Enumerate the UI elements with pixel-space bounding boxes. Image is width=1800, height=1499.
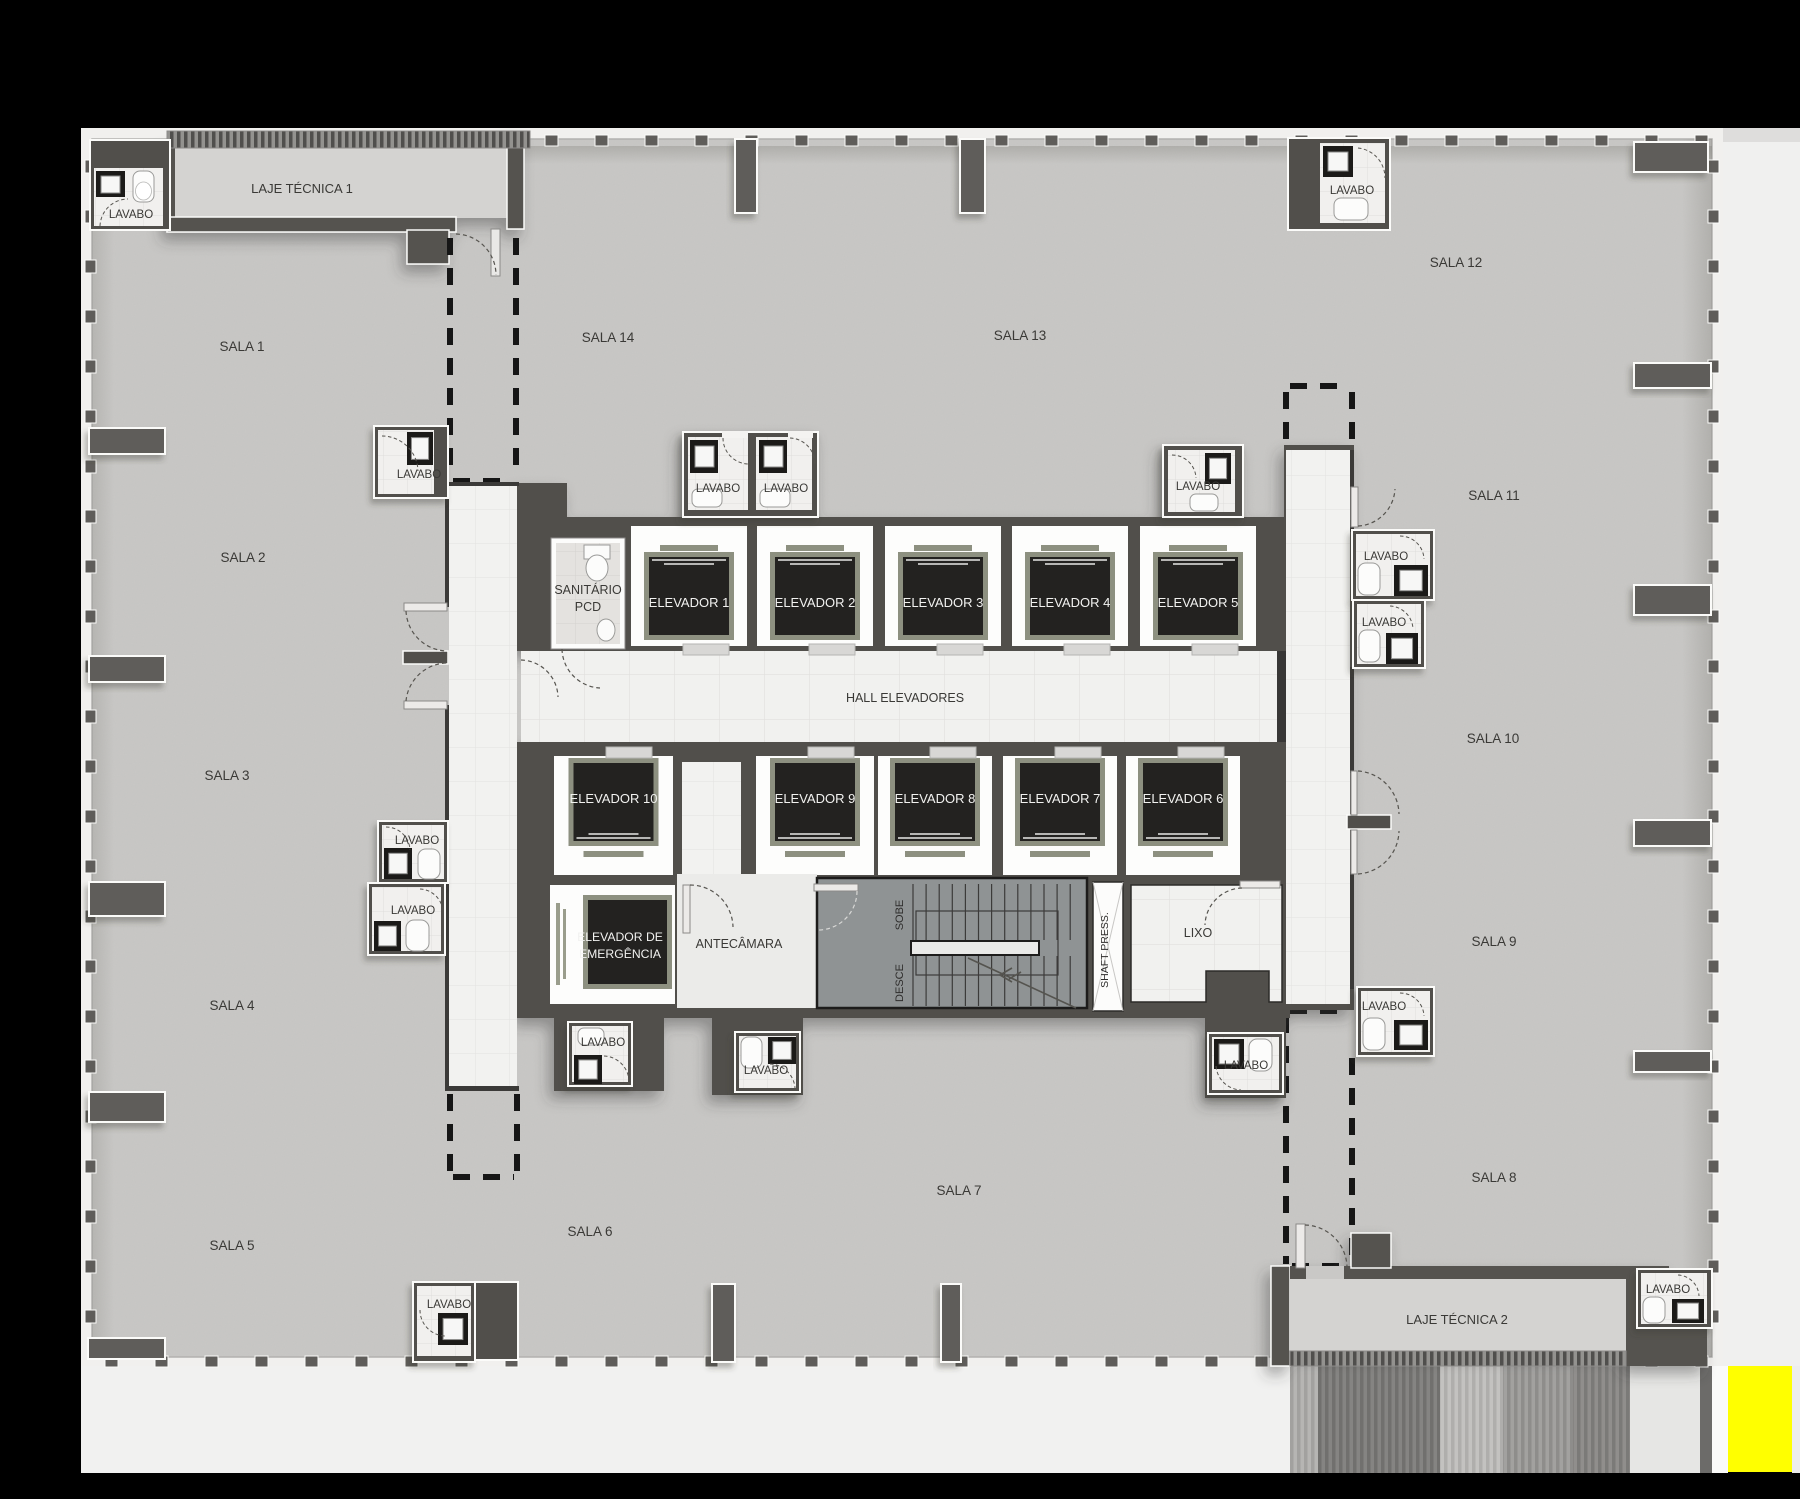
svg-text:SALA 1: SALA 1 <box>219 339 264 354</box>
svg-text:LAVABO: LAVABO <box>391 905 435 917</box>
svg-text:LAVABO: LAVABO <box>581 1037 625 1049</box>
svg-text:ELEVADOR 4: ELEVADOR 4 <box>1030 595 1111 610</box>
svg-text:LAVABO: LAVABO <box>696 483 740 495</box>
svg-text:SALA 2: SALA 2 <box>220 550 265 565</box>
svg-text:SALA 13: SALA 13 <box>994 328 1047 343</box>
svg-text:ELEVADOR 7: ELEVADOR 7 <box>1020 791 1101 806</box>
svg-text:ELEVADOR 9: ELEVADOR 9 <box>775 791 856 806</box>
svg-text:SALA 8: SALA 8 <box>1471 1170 1516 1185</box>
svg-text:ELEVADOR 10: ELEVADOR 10 <box>570 791 658 806</box>
svg-text:ELEVADOR 8: ELEVADOR 8 <box>895 791 976 806</box>
svg-text:LAVABO: LAVABO <box>764 483 808 495</box>
svg-text:SHAFT PRESS.: SHAFT PRESS. <box>1099 912 1111 988</box>
svg-text:HALL ELEVADORES: HALL ELEVADORES <box>846 691 964 705</box>
svg-text:LAVABO: LAVABO <box>1364 551 1408 563</box>
svg-text:LAVABO: LAVABO <box>1330 185 1374 197</box>
svg-text:LAVABO: LAVABO <box>1362 1001 1406 1013</box>
svg-text:SALA 9: SALA 9 <box>1471 934 1516 949</box>
svg-text:LAVABO: LAVABO <box>395 835 439 847</box>
svg-text:LAVABO: LAVABO <box>397 469 441 481</box>
svg-text:EMERGÊNCIA: EMERGÊNCIA <box>579 946 662 961</box>
svg-text:ELEVADOR 1: ELEVADOR 1 <box>649 595 730 610</box>
svg-text:ELEVADOR 3: ELEVADOR 3 <box>903 595 984 610</box>
svg-text:LAVABO: LAVABO <box>1176 481 1220 493</box>
svg-text:LAVABO: LAVABO <box>109 209 153 221</box>
svg-text:SALA 7: SALA 7 <box>936 1183 981 1198</box>
svg-text:LAVABO: LAVABO <box>1362 617 1406 629</box>
svg-text:LAJE TÉCNICA 2: LAJE TÉCNICA 2 <box>1406 1312 1508 1327</box>
svg-text:SALA 4: SALA 4 <box>209 998 255 1013</box>
svg-text:LAVABO: LAVABO <box>1224 1060 1268 1072</box>
svg-text:SALA 12: SALA 12 <box>1430 255 1483 270</box>
svg-text:SOBE: SOBE <box>894 900 906 931</box>
svg-text:LAVABO: LAVABO <box>427 1299 471 1311</box>
svg-text:DESCE: DESCE <box>894 964 906 1002</box>
svg-text:ELEVADOR 2: ELEVADOR 2 <box>775 595 856 610</box>
svg-text:SALA 14: SALA 14 <box>582 330 635 345</box>
svg-text:SALA 3: SALA 3 <box>204 768 249 783</box>
svg-text:SALA 10: SALA 10 <box>1467 731 1520 746</box>
svg-text:ELEVADOR DE: ELEVADOR DE <box>577 930 663 944</box>
svg-text:SANITÁRIO: SANITÁRIO <box>554 582 622 597</box>
svg-text:LAVABO: LAVABO <box>744 1065 788 1077</box>
svg-text:LAJE TÉCNICA 1: LAJE TÉCNICA 1 <box>251 181 353 196</box>
svg-text:ANTECÂMARA: ANTECÂMARA <box>696 936 783 951</box>
svg-text:SALA 11: SALA 11 <box>1468 488 1520 503</box>
svg-text:ELEVADOR 5: ELEVADOR 5 <box>1158 595 1239 610</box>
svg-text:PCD: PCD <box>575 600 601 614</box>
svg-text:LAVABO: LAVABO <box>1646 1284 1690 1296</box>
svg-text:SALA 5: SALA 5 <box>209 1238 254 1253</box>
svg-text:ELEVADOR 6: ELEVADOR 6 <box>1143 791 1224 806</box>
svg-text:LIXO: LIXO <box>1184 926 1213 940</box>
svg-text:SALA 6: SALA 6 <box>567 1224 612 1239</box>
